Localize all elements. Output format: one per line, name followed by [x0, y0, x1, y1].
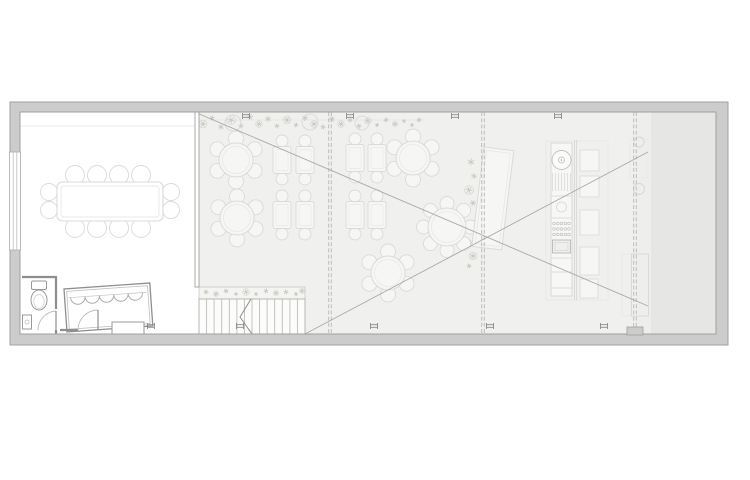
chair: [299, 135, 311, 147]
round-table-top: [396, 141, 430, 175]
entry-glazing-frame: [10, 152, 21, 250]
chair: [276, 228, 288, 240]
kitchen-unit: [580, 210, 599, 235]
partition-pocket-floor: [637, 112, 651, 334]
chair: [163, 184, 180, 201]
chair: [41, 184, 58, 201]
banquet-table: [57, 182, 163, 221]
chair: [349, 171, 361, 183]
round-table-top: [220, 201, 254, 235]
chair: [299, 173, 311, 185]
round-table-top: [428, 208, 466, 246]
round-table-top: [371, 256, 405, 290]
chair: [276, 135, 288, 147]
kitchen-unit: [580, 279, 598, 298]
floor-plan-page: [0, 0, 750, 480]
chair: [371, 228, 383, 240]
wall-notch: [627, 327, 643, 335]
round-table: [417, 197, 478, 258]
chair: [299, 228, 311, 240]
chair: [41, 202, 58, 219]
chair: [349, 190, 361, 202]
floor-plan-drawing: [0, 0, 750, 480]
chair: [349, 133, 361, 145]
terrace-floor: [651, 112, 716, 334]
chair: [371, 171, 383, 183]
banquet-table-top: [57, 182, 163, 221]
kitchen-unit: [580, 150, 599, 171]
partition-wall: [195, 112, 199, 287]
kitchen-unit: [580, 247, 599, 275]
toilet-tank: [32, 281, 47, 290]
chair: [276, 190, 288, 202]
hand-sink: [23, 315, 32, 329]
chair: [349, 228, 361, 240]
chair: [299, 190, 311, 202]
toilet-icon: [31, 290, 47, 310]
entry-glazing: [10, 152, 21, 250]
staircase: [199, 299, 305, 334]
chair: [371, 133, 383, 145]
round-table-top: [219, 143, 253, 177]
chair: [276, 173, 288, 185]
sink-dot: [561, 159, 563, 161]
chair: [163, 202, 180, 219]
